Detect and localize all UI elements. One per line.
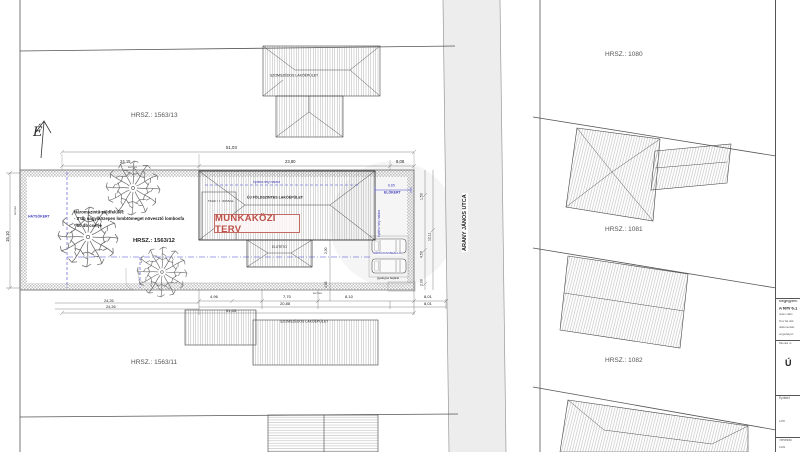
dim-bottom-total: 51,03 (226, 309, 236, 313)
neighbor-top-label: SZOMSZÉDOS LAKÓÉPÜLET (270, 74, 318, 78)
notes-small-line: dokumentác (779, 326, 789, 329)
terrace-label: FEDETT TERASZ (207, 200, 235, 203)
title-block-designers: Tervezők Csibi (776, 437, 800, 452)
parking-label: GÉPKOCSI BEÁLLÓ (373, 252, 401, 255)
street-band (443, 0, 506, 452)
parcel-label-1563-12: HRSZ.: 1563/12 (133, 238, 175, 244)
dim-bl-a: 24,26 (104, 299, 114, 303)
designer-name: Csibi (779, 446, 789, 449)
dim-bottom-b: 7,70 (283, 295, 291, 299)
neighbor-house-top (263, 46, 380, 137)
pedestrian-entry-label: gyalogos bejárat (377, 277, 399, 280)
new-house-label: ÚJ FÖLDSZINTES LAKÓÉPÜLET (247, 196, 303, 200)
parcel-label-1080: HRSZ.: 1080 (605, 51, 643, 58)
north-letter: É (33, 126, 43, 140)
project-initial: Ú (785, 359, 800, 369)
parcel-label-1563-11: HRSZ.: 1563/11 (131, 359, 177, 366)
notes-label: Megjegyzés: (779, 300, 791, 304)
dim-right-a: 1,50 (420, 193, 424, 200)
address-label: Cím (779, 420, 790, 423)
envelope-label-2: építési hely határa (378, 210, 382, 237)
canopy-label: ELŐTETŐ (272, 246, 287, 249)
neighbor-house-bottom (185, 310, 378, 365)
title-block-project: Munka m Ú (776, 340, 800, 395)
planting-note-item: - 3 db nagy/közepes lombtömeget növesztő… (74, 216, 218, 223)
street-name-label: ARANY JÁNOS UTCA (462, 193, 468, 252)
dim-right-b: 12,11 (428, 233, 432, 241)
dim-inner-b: 4,95 (325, 282, 329, 288)
planting-note-item: - 60 db cserje (74, 223, 218, 230)
dim-bottom-d: 8,01 (424, 295, 432, 299)
notes-small-line: Jelen válto (779, 313, 789, 316)
parking-area (369, 236, 408, 277)
car-icon (372, 259, 406, 273)
planting-note-title: Háromszintű zöldfelület: (74, 209, 218, 216)
front-dim: 6,65 (388, 184, 395, 188)
client-label: Építtető (779, 397, 790, 400)
parcel-label-1082: HRSZ.: 1082 (605, 357, 643, 364)
dim-top-a: 24,15 (120, 160, 131, 165)
envelope-label: építési hely határa (253, 181, 280, 185)
dim-right-c: 4,50 (420, 251, 424, 258)
bottom-building (268, 415, 378, 452)
rear-garden-label: HÁTSÓKERT (28, 215, 50, 219)
fence-label-bottom: kerítés (313, 292, 322, 295)
fence-label-left: kerítés (14, 206, 17, 215)
parcel-label-1081: HRSZ.: 1081 (605, 226, 643, 233)
planting-note: Háromszintű zöldfelület: - 3 db nagy/köz… (74, 209, 218, 230)
title-block: Megjegyzés: A terv 6.1 Jelen válto Terv … (775, 0, 800, 452)
dim-bottom-a: 4,96 (210, 295, 218, 299)
car-icon (372, 239, 406, 253)
title-block-notes: Megjegyzés: A terv 6.1 Jelen válto Terv … (776, 298, 800, 340)
dim-right-d: 2,00 (420, 279, 424, 286)
dim-bl-b: 24,26 (106, 305, 116, 309)
dim-inner-a: 2,00 (325, 248, 329, 254)
dim-bottom-e: 20,88 (280, 302, 290, 306)
front-garden-label: ELŐKERT (384, 191, 401, 195)
dim-left-total: 15,10 (6, 231, 11, 242)
right-houses (560, 128, 748, 452)
designers-label: Tervezők (779, 439, 790, 442)
site-plan-page: HRSZ.: 1563/13 HRSZ.: 1563/12 HRSZ.: 156… (0, 0, 800, 452)
parcel-label-1563-13: HRSZ.: 1563/13 (131, 112, 178, 119)
notes-small-line: engedélyez (779, 333, 789, 336)
neighbor-bottom-label: SZOMSZÉDOS LAKÓÉPÜLET (280, 320, 328, 324)
dim-top-c: 8,08 (396, 160, 404, 165)
title-block-client: Építtető Cím (776, 395, 800, 437)
project-label: Munka m (779, 342, 790, 345)
dim-bottom-c: 8,10 (345, 295, 353, 299)
dim-top-total: 51,03 (226, 146, 237, 151)
notes-bold-line: A terv 6.1 (779, 307, 793, 311)
dim-bottom-f: 8,01 (424, 302, 432, 306)
fence-label-top: kerítés (128, 166, 137, 169)
notes-small-line: Terv 6a dok (779, 320, 789, 323)
dim-top-b: 23,80 (285, 160, 296, 165)
work-in-progress-stamp: MUNKAKÖZI TERV (214, 214, 300, 233)
